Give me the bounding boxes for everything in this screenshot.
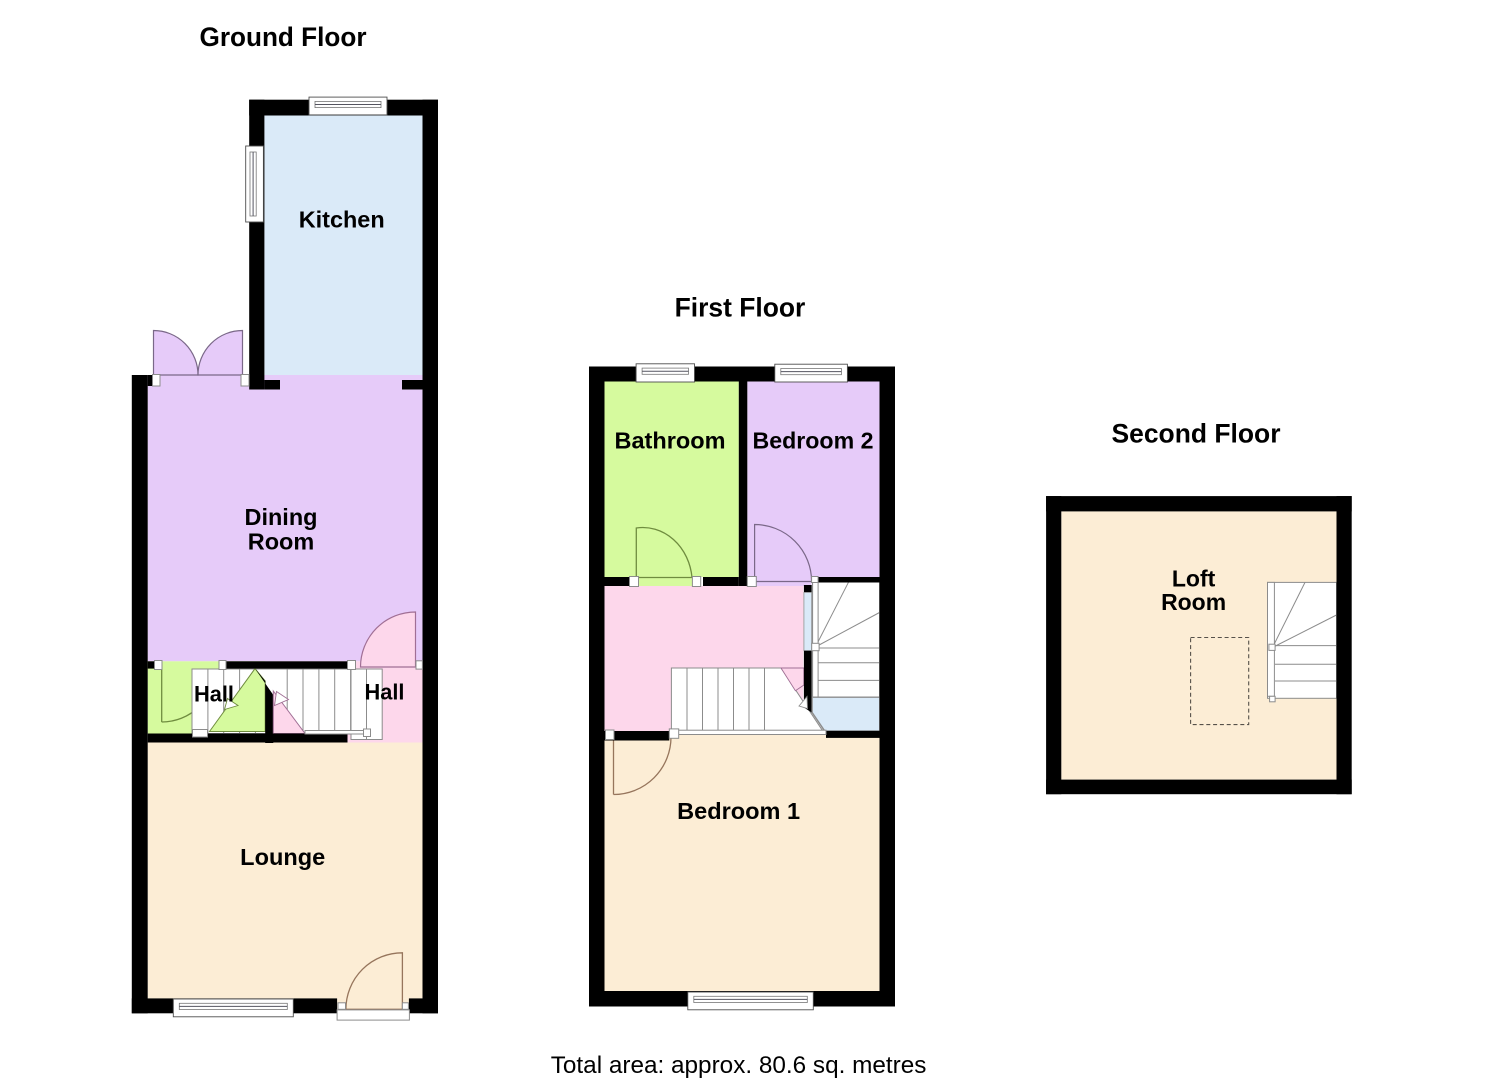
svg-text:Lounge: Lounge (240, 844, 325, 870)
svg-text:Bedroom 1: Bedroom 1 (677, 798, 800, 824)
svg-text:Ground Floor: Ground Floor (200, 22, 367, 52)
svg-text:Hall: Hall (365, 680, 405, 705)
svg-text:Room: Room (248, 528, 315, 554)
svg-text:Bathroom: Bathroom (615, 428, 726, 454)
svg-text:Loft: Loft (1172, 565, 1216, 591)
svg-text:Dining: Dining (245, 504, 318, 530)
svg-text:Room: Room (1161, 589, 1226, 615)
svg-text:First Floor: First Floor (675, 292, 806, 322)
svg-text:Bedroom 2: Bedroom 2 (753, 428, 874, 454)
svg-text:Second Floor: Second Floor (1112, 418, 1281, 448)
svg-text:Kitchen: Kitchen (299, 207, 385, 233)
svg-text:Hall: Hall (194, 682, 234, 707)
svg-text:Total area: approx. 80.6 sq. m: Total area: approx. 80.6 sq. metres (551, 1052, 927, 1079)
